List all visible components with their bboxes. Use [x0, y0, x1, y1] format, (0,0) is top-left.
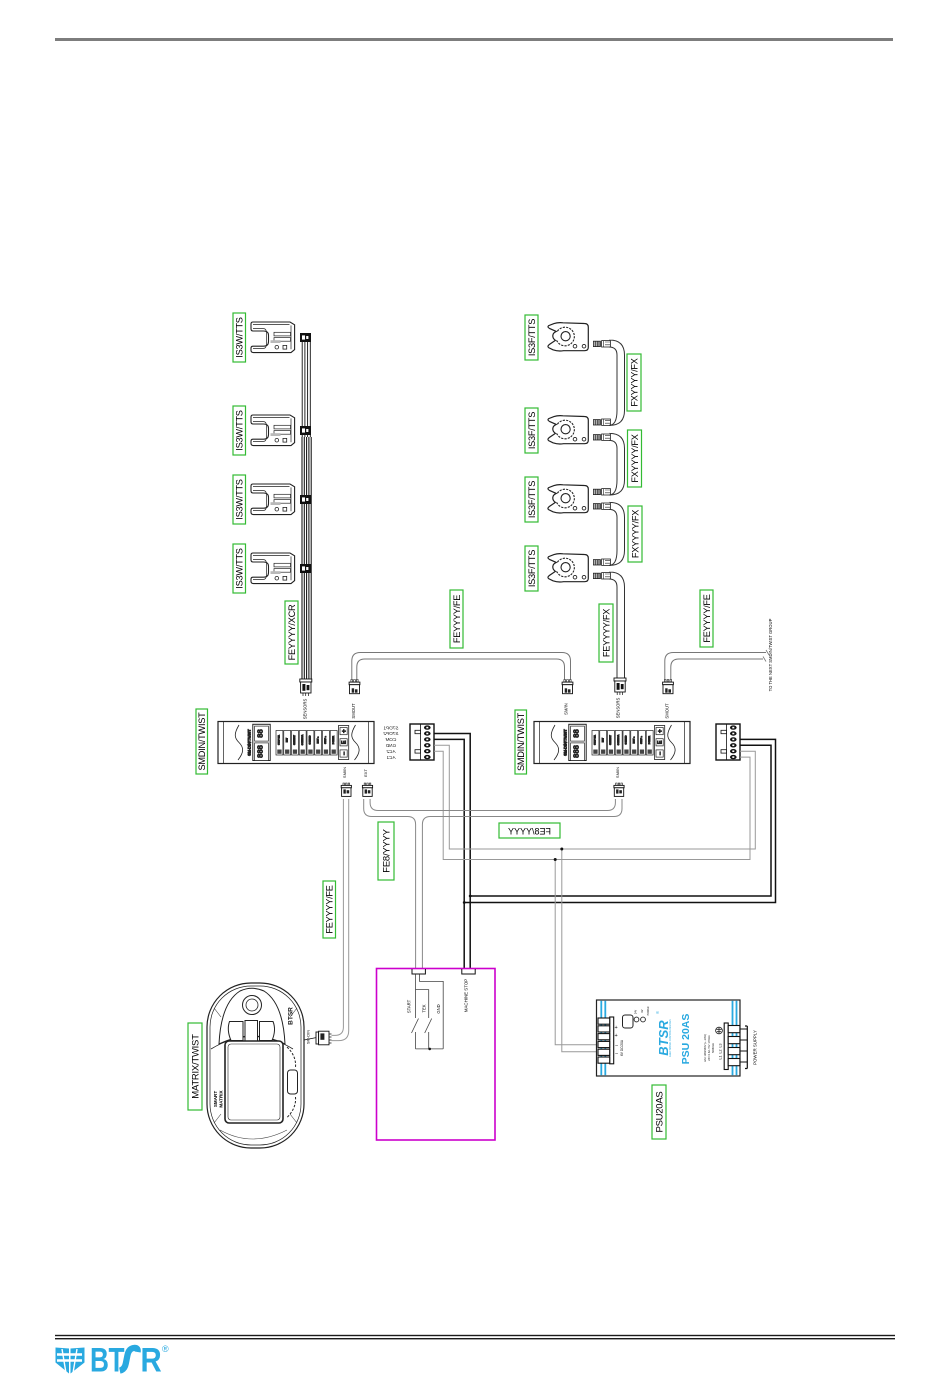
svg-text:FEYYYY/FX: FEYYYY/FX [601, 609, 611, 657]
svg-text:24V: 24V [635, 1009, 638, 1014]
svg-text:SM/IN: SM/IN [564, 703, 569, 715]
svg-text:START: START [407, 999, 412, 1013]
svg-text:PSU20AS: PSU20AS [654, 1091, 665, 1132]
svg-text:L1 L2 L3: L1 L2 L3 [719, 1044, 723, 1060]
svg-text:24V 0.8A / 5V 170mA: 24V 0.8A / 5V 170mA [707, 1035, 711, 1061]
svg-text:FXYYYY/FX: FXYYYY/FX [629, 358, 639, 406]
svg-text:SM/IN: SM/IN [342, 767, 347, 778]
svg-text:SMOUT: SMOUT [351, 703, 356, 719]
svg-text:SM-DIN: SM-DIN [306, 1030, 311, 1044]
svg-text:+: + [615, 1033, 618, 1039]
svg-text:R: R [141, 1340, 162, 1379]
svg-text:+: + [615, 1025, 618, 1031]
svg-text:BT: BT [90, 1341, 125, 1379]
svg-text:SMART: SMART [213, 1091, 218, 1108]
svg-text:TO THE NEXT SMDIN/TWIST GROUP: TO THE NEXT SMDIN/TWIST GROUP [768, 618, 773, 691]
svg-text:COM: COM [385, 737, 396, 742]
svg-text:IS3W/TTS: IS3W/TTS [235, 548, 245, 588]
svg-text:IS3W/TTS: IS3W/TTS [235, 317, 245, 357]
svg-text:®: ® [655, 1011, 660, 1014]
svg-text:6V: 6V [641, 1009, 644, 1012]
svg-text:FE8/YYYY: FE8/YYYY [508, 827, 551, 837]
svg-text:3AC 380/440V (+-10%): 3AC 380/440V (+-10%) [703, 1034, 707, 1062]
svg-text:GND: GND [436, 1004, 441, 1013]
svg-text:SENSORS: SENSORS [616, 698, 621, 719]
svg-text:AC1: AC1 [386, 755, 396, 760]
svg-text:ELECTRONIC CONTROL DEVICES: ELECTRONIC CONTROL DEVICES [670, 1019, 672, 1057]
svg-text:FE8/YYYY: FE8/YYYY [381, 828, 392, 872]
svg-text:SM/IN: SM/IN [615, 767, 620, 778]
svg-text:IS3W/TTS: IS3W/TTS [235, 479, 245, 519]
svg-text:FXYYYY/FX: FXYYYY/FX [630, 434, 640, 482]
svg-text:®: ® [162, 1344, 169, 1354]
svg-text:IS3W/TTS: IS3W/TTS [235, 410, 245, 450]
svg-text:−: − [615, 1043, 618, 1049]
svg-text:POWER: POWER [647, 1006, 650, 1015]
svg-text:SMOUT: SMOUT [665, 703, 670, 719]
svg-text:BTSR: BTSR [288, 1007, 295, 1025]
svg-text:−: − [615, 1051, 618, 1057]
svg-text:IS3F/TTS: IS3F/TTS [527, 412, 537, 449]
svg-text:IS3F/TTS: IS3F/TTS [527, 550, 537, 587]
svg-text:STOP2: STOP2 [383, 731, 398, 736]
svg-text:MATRIX: MATRIX [219, 1089, 224, 1107]
svg-text:SMDIN/TWIST: SMDIN/TWIST [197, 712, 207, 771]
svg-text:BTSR: BTSR [656, 1020, 671, 1056]
svg-text:GND: GND [385, 743, 396, 748]
svg-text:6V DC/20A: 6V DC/20A [620, 1039, 624, 1056]
svg-text:FEYYYY/FE: FEYYYY/FE [702, 594, 712, 642]
svg-text:FEYYYY/FE: FEYYYY/FE [452, 595, 462, 643]
svg-text:SMDIN/TWIST: SMDIN/TWIST [516, 712, 526, 771]
svg-text:IS3F/TTS: IS3F/TTS [527, 319, 537, 356]
svg-text:MACHINE STOP: MACHINE STOP [464, 979, 469, 1012]
svg-text:TEK: TEK [422, 1004, 427, 1012]
svg-text:PSU 20AS: PSU 20AS [680, 1014, 692, 1065]
svg-text:IS3F/TTS: IS3F/TTS [527, 481, 537, 518]
svg-text:STOP1: STOP1 [383, 725, 398, 730]
svg-text:FEYYYY/FE: FEYYYY/FE [325, 885, 335, 933]
svg-text:AC2: AC2 [386, 749, 396, 754]
svg-text:50/60Hz: 50/60Hz [711, 1042, 715, 1053]
svg-text:SENSORS: SENSORS [303, 699, 308, 720]
svg-text:EXT: EXT [363, 769, 368, 777]
svg-text:POWER SUPPLY: POWER SUPPLY [753, 1030, 758, 1065]
svg-text:FEYYYY/XCR: FEYYYY/XCR [287, 604, 297, 660]
svg-text:FXYYYY/FX: FXYYYY/FX [630, 510, 640, 558]
svg-text:MATRIX/TWIST: MATRIX/TWIST [190, 1034, 201, 1099]
